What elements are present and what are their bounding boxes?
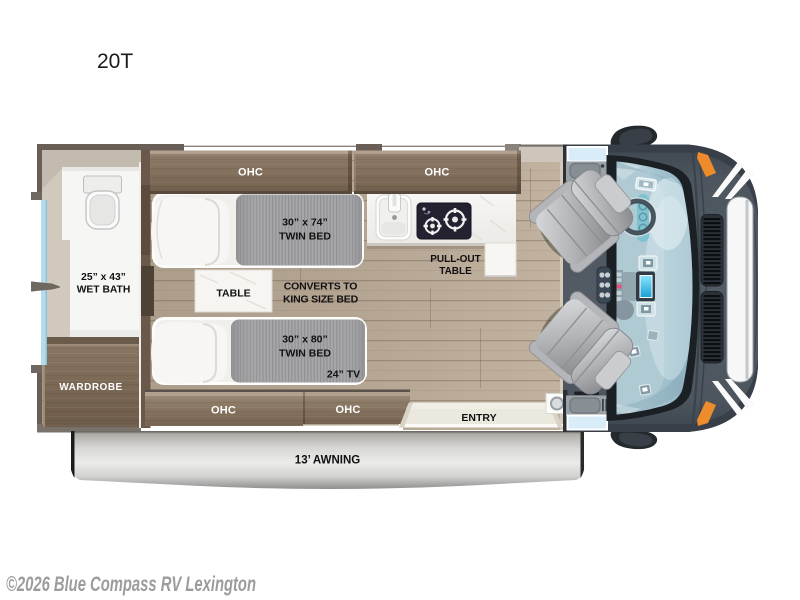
svg-text:20T: 20T	[97, 50, 133, 73]
svg-text:KING SIZE BED: KING SIZE BED	[283, 294, 359, 306]
svg-text:OHC: OHC	[211, 405, 236, 417]
svg-text:13’ AWNING: 13’ AWNING	[295, 455, 360, 467]
svg-text:TWIN BED: TWIN BED	[279, 348, 331, 360]
svg-text:TABLE: TABLE	[439, 266, 472, 277]
svg-text:©2026 Blue Compass RV Lexingto: ©2026 Blue Compass RV Lexington	[6, 573, 256, 596]
svg-text:TWIN BED: TWIN BED	[279, 231, 331, 243]
svg-text:WARDROBE: WARDROBE	[59, 382, 122, 393]
svg-text:WET BATH: WET BATH	[77, 284, 131, 295]
svg-text:25” x 43”: 25” x 43”	[81, 272, 126, 283]
svg-text:TABLE: TABLE	[216, 287, 250, 299]
svg-text:ENTRY: ENTRY	[461, 412, 496, 424]
svg-text:PULL-OUT: PULL-OUT	[430, 254, 481, 265]
svg-text:CONVERTS TO: CONVERTS TO	[284, 281, 357, 293]
svg-text:30” x 74”: 30” x 74”	[282, 217, 328, 229]
svg-text:OHC: OHC	[424, 167, 449, 179]
svg-text:30” x 80”: 30” x 80”	[282, 334, 328, 346]
svg-text:24” TV: 24” TV	[327, 369, 360, 381]
svg-text:OHC: OHC	[238, 167, 263, 179]
svg-text:OHC: OHC	[335, 404, 360, 416]
